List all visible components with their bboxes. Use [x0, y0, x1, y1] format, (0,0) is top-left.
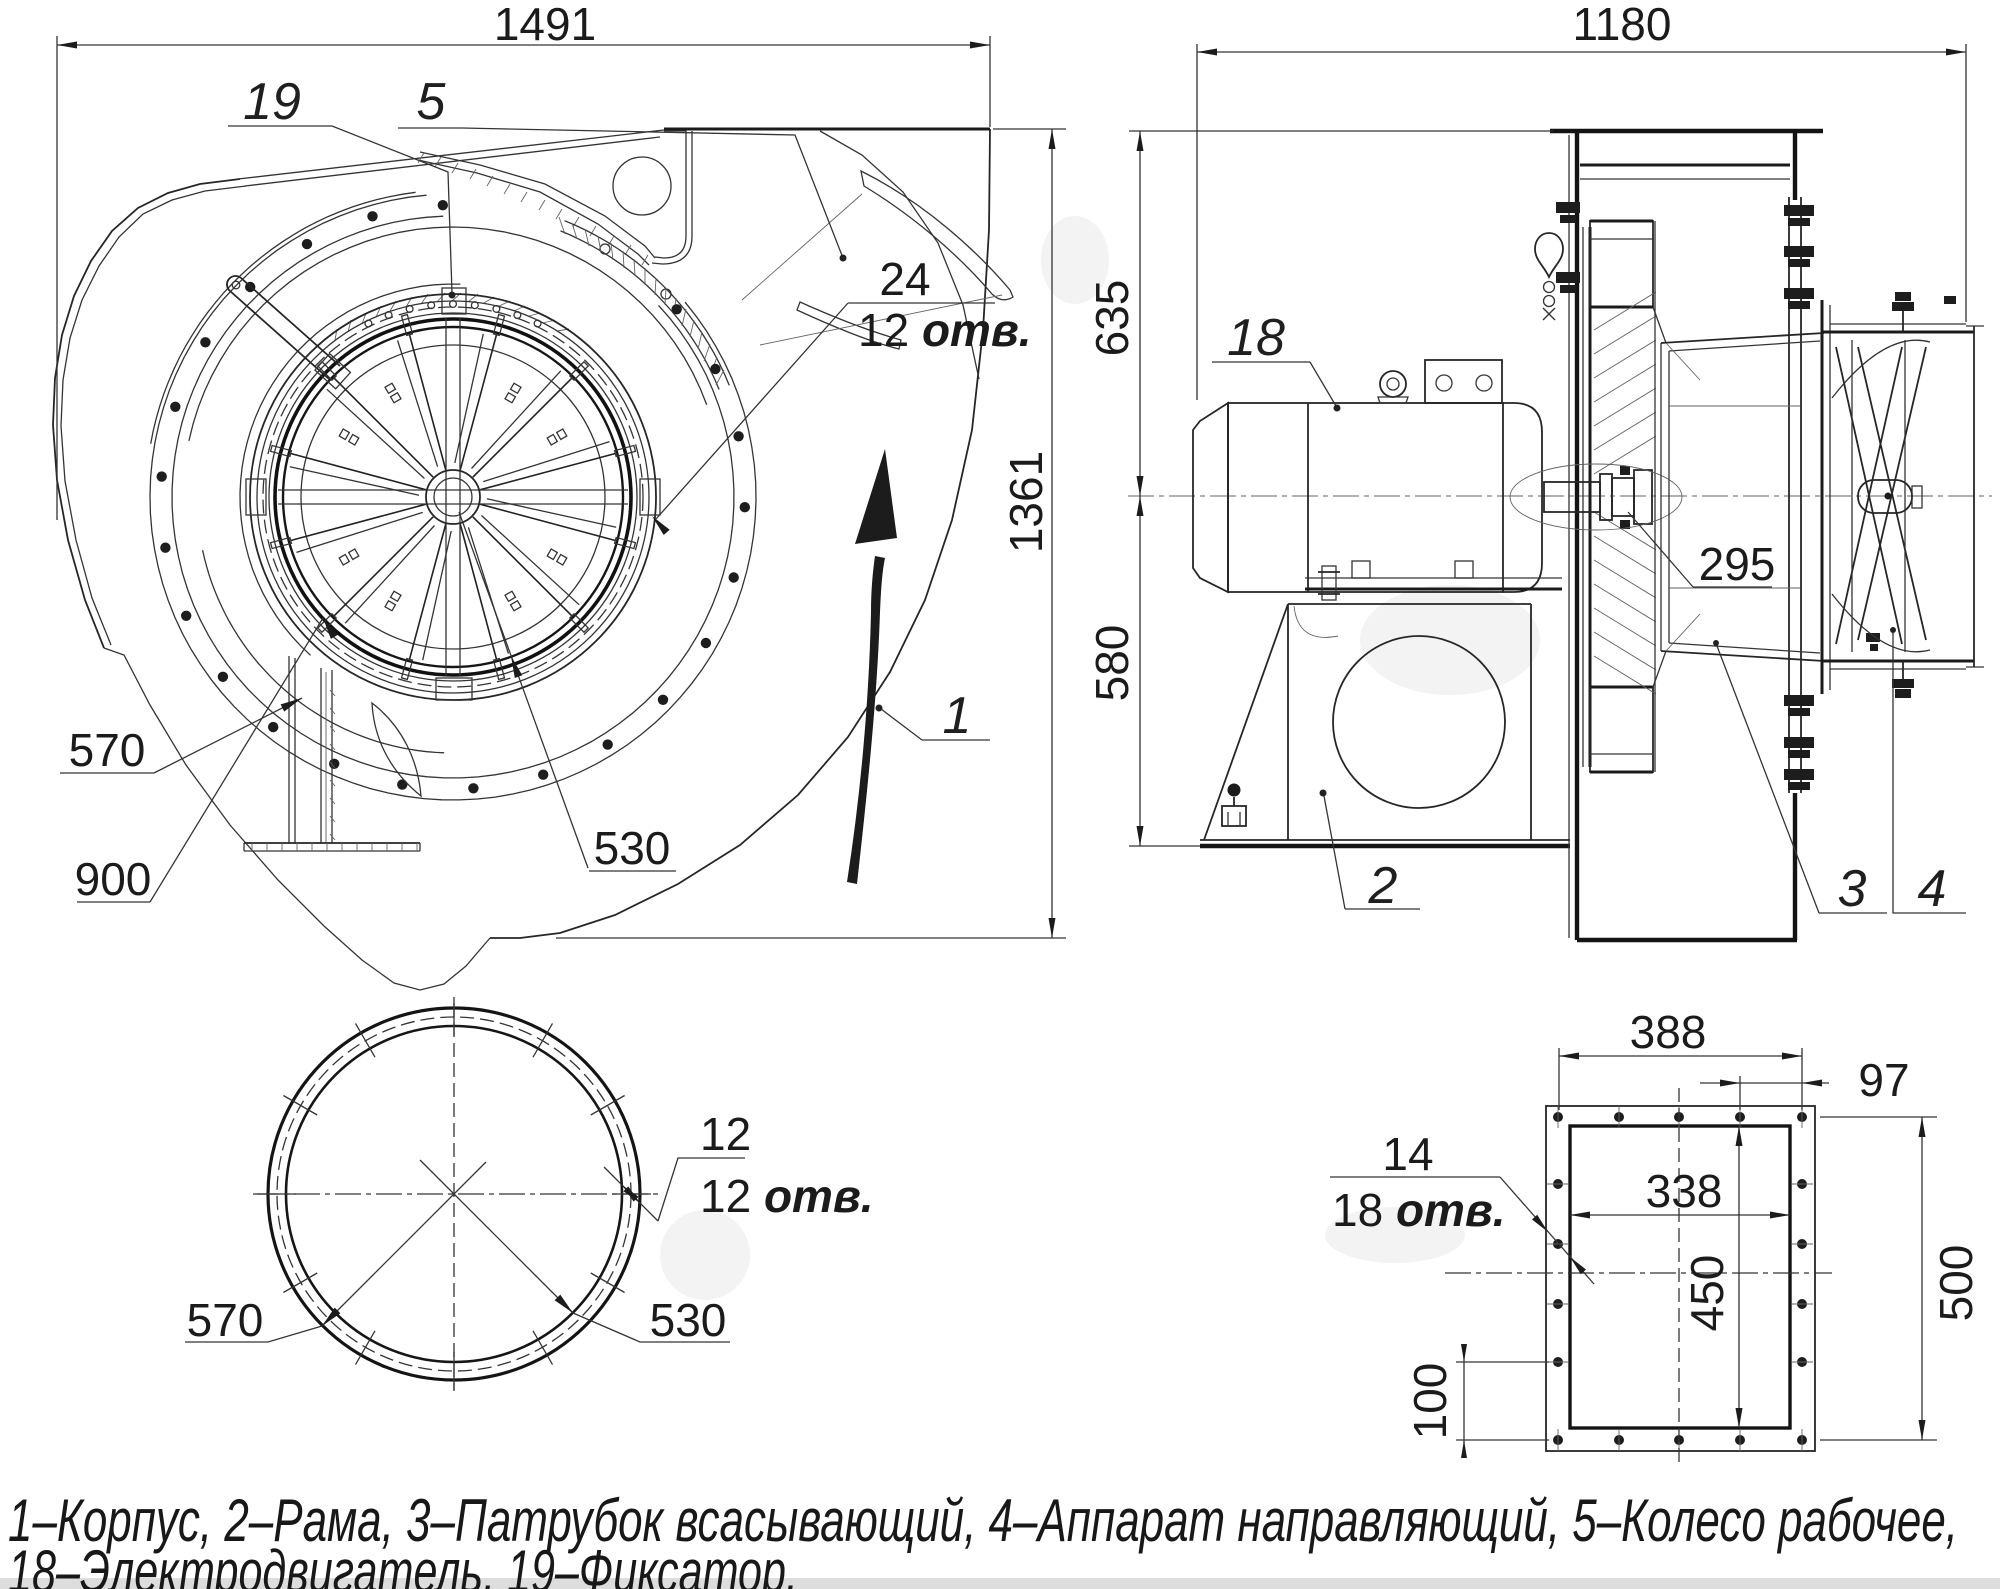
svg-text:3: 3 [1838, 860, 1867, 918]
svg-text:5: 5 [417, 73, 447, 131]
svg-text:18 отв.: 18 отв. [1332, 1184, 1506, 1236]
svg-text:450: 450 [1681, 1255, 1733, 1332]
svg-text:18: 18 [1227, 309, 1285, 367]
svg-text:338: 338 [1646, 1165, 1723, 1217]
svg-text:19: 19 [243, 73, 301, 131]
svg-text:388: 388 [1630, 1006, 1707, 1058]
svg-text:500: 500 [1930, 1245, 1982, 1322]
svg-text:580: 580 [1086, 625, 1138, 702]
svg-text:1361: 1361 [1000, 451, 1052, 553]
svg-text:14: 14 [1382, 1128, 1433, 1180]
svg-text:4: 4 [1918, 860, 1947, 918]
svg-text:12: 12 [700, 1108, 751, 1160]
svg-text:1491: 1491 [494, 0, 596, 50]
svg-text:12 отв.: 12 отв. [858, 304, 1032, 356]
svg-text:1180: 1180 [1573, 0, 1672, 50]
svg-text:24: 24 [879, 253, 930, 305]
svg-text:530: 530 [650, 1294, 727, 1346]
svg-text:100: 100 [1404, 1363, 1456, 1440]
svg-text:635: 635 [1086, 280, 1138, 357]
svg-text:18–Электродвигатель, 19–Фиксат: 18–Электродвигатель, 19–Фиксатор. [8, 1538, 798, 1589]
svg-text:1: 1 [943, 687, 972, 745]
svg-text:570: 570 [69, 724, 146, 776]
svg-text:570: 570 [187, 1294, 264, 1346]
svg-text:530: 530 [594, 822, 671, 874]
svg-text:295: 295 [1699, 538, 1776, 590]
svg-text:2: 2 [1368, 857, 1398, 915]
svg-text:97: 97 [1858, 1054, 1909, 1106]
svg-text:900: 900 [75, 853, 152, 905]
svg-text:12 отв.: 12 отв. [700, 1170, 874, 1222]
